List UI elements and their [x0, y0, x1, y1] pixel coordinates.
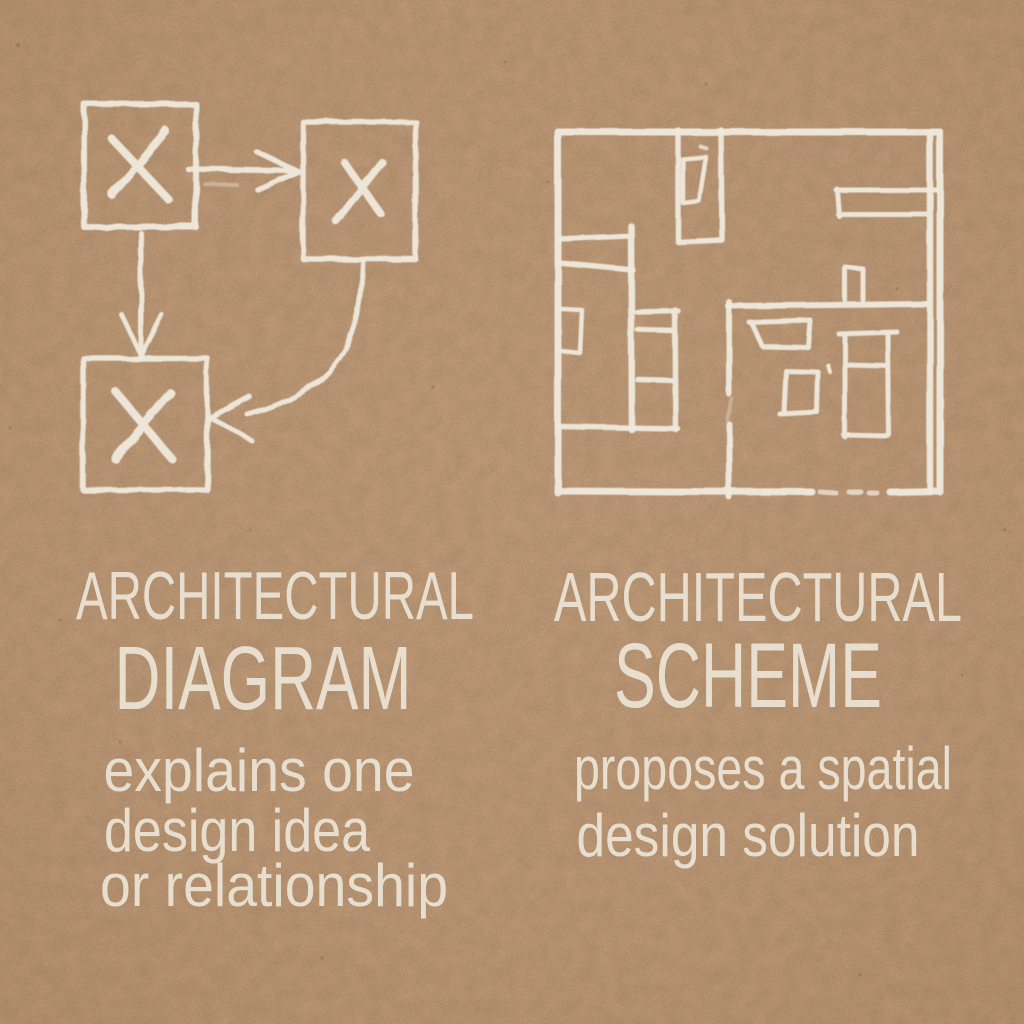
svg-text:DIAGRAM: DIAGRAM — [115, 629, 412, 729]
svg-text:design solution: design solution — [577, 802, 920, 869]
svg-text:explains one: explains one — [104, 737, 415, 804]
svg-text:proposes a spatial: proposes a spatial — [574, 735, 952, 802]
svg-text:ARCHITECTURAL: ARCHITECTURAL — [76, 558, 474, 634]
svg-text:SCHEME: SCHEME — [614, 625, 882, 727]
svg-text:or relationship: or relationship — [100, 852, 448, 919]
